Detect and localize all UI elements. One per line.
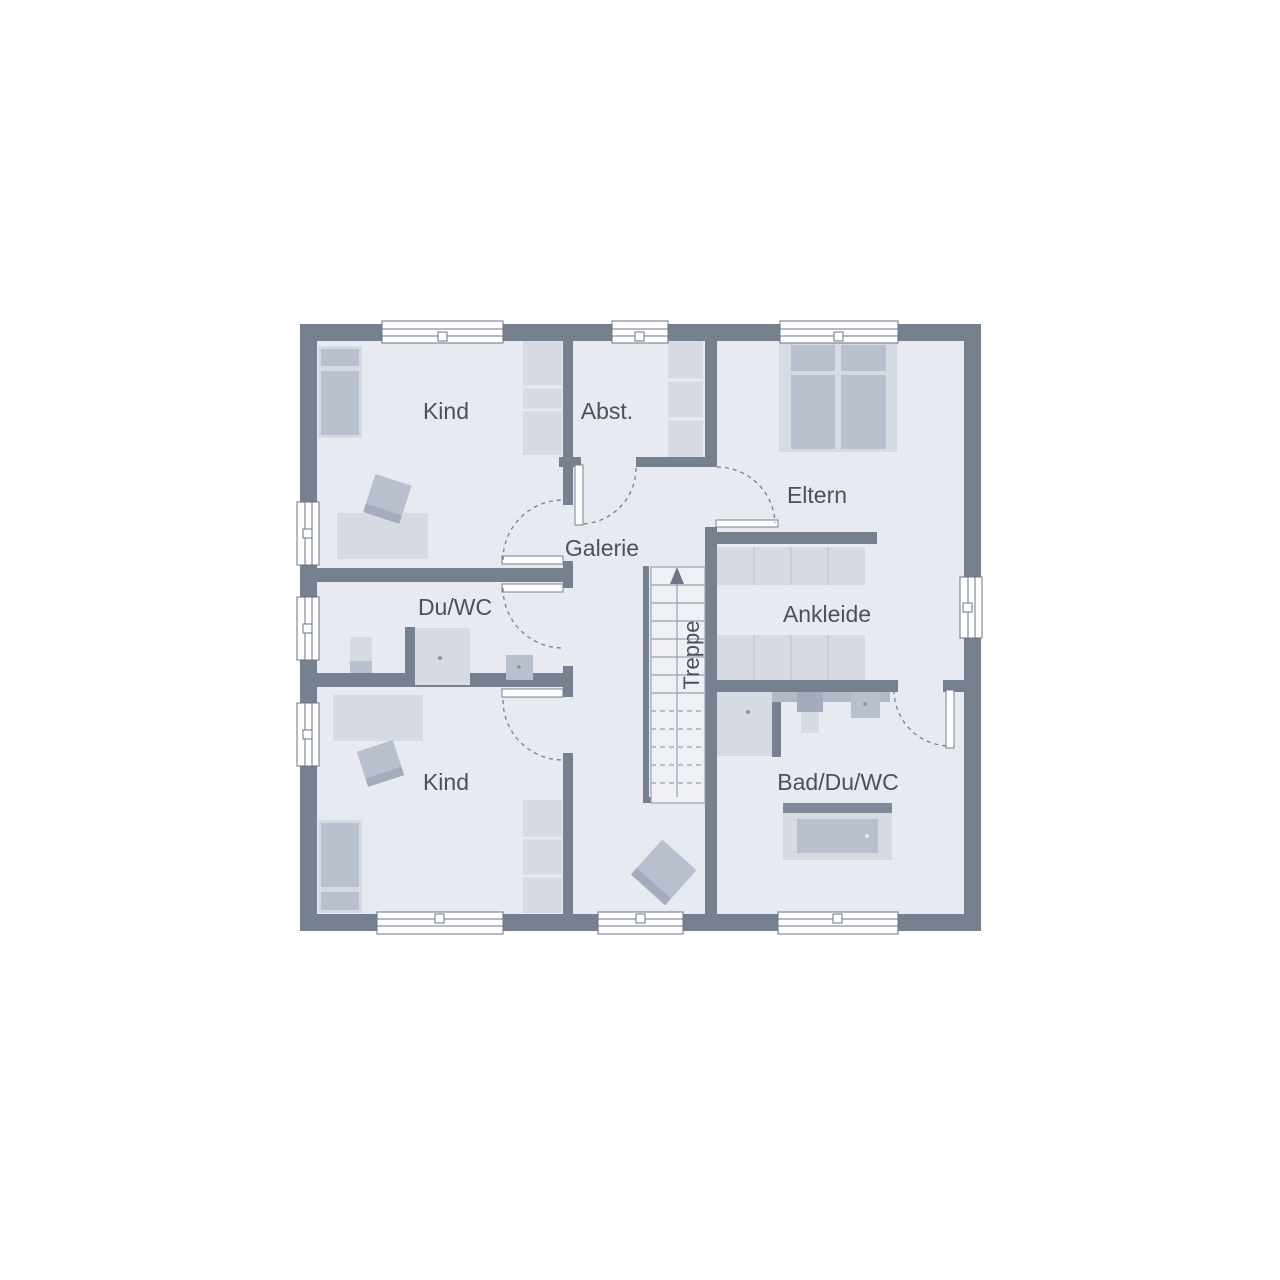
wall-ankleide-bad xyxy=(705,680,898,692)
bed-pillow-left xyxy=(791,345,835,371)
door-leaf-bad xyxy=(946,690,954,748)
window-handle xyxy=(963,603,972,612)
label-bad-duwc: Bad/Du/WC xyxy=(777,769,898,795)
label-galerie: Galerie xyxy=(565,535,639,561)
wall-kind-bottom-galerie xyxy=(563,753,573,914)
window-handle xyxy=(303,624,312,633)
window-handle xyxy=(438,332,447,341)
window-handle xyxy=(303,529,312,538)
wall-galerie-kind-top xyxy=(563,457,573,505)
toilet-bowl xyxy=(350,637,372,661)
window-left-kind-top xyxy=(297,502,319,565)
wardrobe-kind-bottom xyxy=(523,800,562,913)
wardrobe xyxy=(523,800,562,913)
label-treppe: Treppe xyxy=(679,621,704,690)
shower-tray xyxy=(415,628,470,685)
door-leaf-kind-bottom xyxy=(502,689,563,697)
window-top-abst xyxy=(612,321,668,343)
label-duwc: Du/WC xyxy=(418,594,492,620)
bathtub-drain xyxy=(865,834,869,838)
window-handle xyxy=(636,914,645,923)
wardrobe-kind-top xyxy=(523,341,562,455)
wall-ankleide-top xyxy=(705,532,877,544)
wall-abst-eltern xyxy=(705,341,717,467)
window-handle xyxy=(303,730,312,739)
bed-eltern xyxy=(779,341,897,452)
bathtub-ledge xyxy=(783,803,892,813)
label-ankleide: Ankleide xyxy=(783,601,871,627)
closet-ankleide-top xyxy=(717,547,865,585)
floorplan-drawing: Kind Abst. Eltern Galerie Du/WC Ankleide… xyxy=(0,0,1280,1280)
wall-duwc-cap-bottom xyxy=(563,666,573,697)
door-leaf-duwc xyxy=(502,584,563,592)
sink-drain xyxy=(863,702,867,706)
window-handle xyxy=(834,332,843,341)
bed-mattress-right xyxy=(841,375,886,449)
wall-abst-bottom xyxy=(636,457,705,467)
toilet-tank xyxy=(350,661,372,673)
bed-mattress-left xyxy=(791,375,835,449)
label-abst: Abst. xyxy=(581,398,633,424)
wardrobe xyxy=(523,341,562,455)
window-handle xyxy=(635,332,644,341)
shower-drain xyxy=(438,656,442,660)
cabinet xyxy=(668,341,703,457)
sink-drain xyxy=(517,665,521,669)
bed-pillow xyxy=(321,892,359,910)
bed-kind-bottom xyxy=(318,820,362,913)
label-eltern: Eltern xyxy=(787,482,847,508)
bed-pillow-right xyxy=(841,345,886,371)
label-kind-top: Kind xyxy=(423,398,469,424)
window-handle xyxy=(833,914,842,923)
wall-duwc-divider xyxy=(405,627,415,687)
toilet-bowl xyxy=(801,712,819,733)
bed-mattress xyxy=(321,371,359,435)
window-bottom-bad xyxy=(778,912,898,934)
window-top-eltern xyxy=(780,321,898,343)
desk-kind-top xyxy=(337,513,428,559)
label-kind-bottom: Kind xyxy=(423,769,469,795)
window-right-ankleide xyxy=(960,577,982,638)
window-left-duwc xyxy=(297,597,319,660)
desk-kind-bottom xyxy=(333,695,423,741)
window-bottom-kind xyxy=(377,912,503,934)
bed-kind-top xyxy=(318,346,362,438)
wall-duwc-cap-top xyxy=(563,561,573,588)
floorplan-page: Kind Abst. Eltern Galerie Du/WC Ankleide… xyxy=(0,0,1280,1280)
door-leaf-abst xyxy=(575,465,583,525)
wall-kind-duwc xyxy=(317,568,563,582)
bed-pillow xyxy=(321,349,359,366)
wall-kind-abst xyxy=(563,341,573,457)
bed-mattress xyxy=(321,823,359,887)
wall-stair-left xyxy=(643,566,649,803)
door-leaf-kind-top xyxy=(502,556,563,564)
closet-ankleide-bottom xyxy=(717,635,865,680)
shower-tray xyxy=(717,692,772,756)
shower-drain xyxy=(746,710,750,714)
toilet-tank xyxy=(797,692,823,712)
door-leaf-eltern xyxy=(716,520,778,527)
window-bottom-galerie xyxy=(598,912,683,934)
window-handle xyxy=(435,914,444,923)
window-top-kind xyxy=(382,321,503,343)
cabinet-abst xyxy=(668,341,703,457)
window-left-kind-bottom xyxy=(297,703,319,766)
wall-main-vertical xyxy=(705,527,717,914)
